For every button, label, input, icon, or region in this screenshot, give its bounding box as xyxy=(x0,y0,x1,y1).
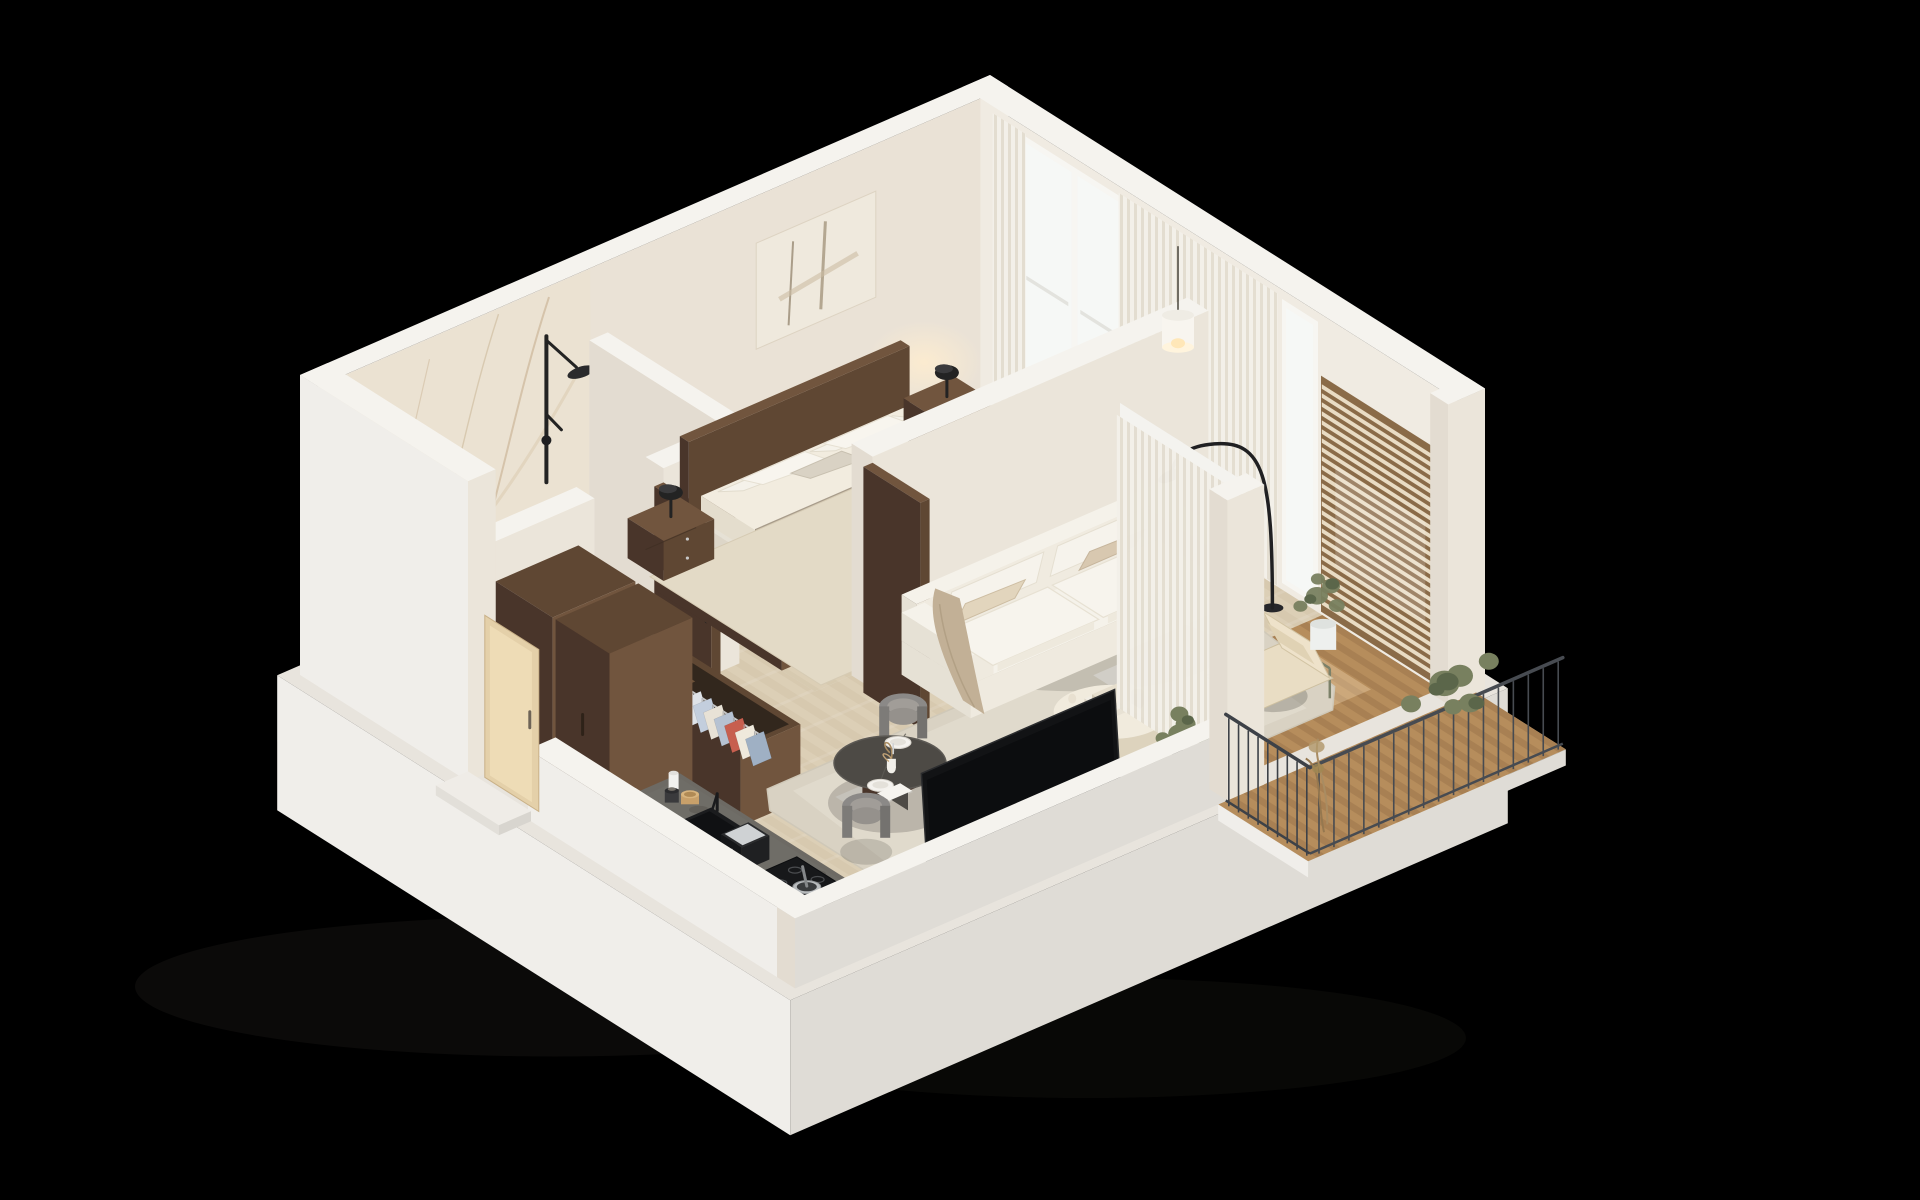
balcony-pier-right xyxy=(1430,377,1485,704)
floorplan-stage xyxy=(0,0,1920,1200)
balcony-pier-left xyxy=(1209,473,1264,800)
apartment-floorplan-3d-render xyxy=(0,0,1920,1200)
entry-door xyxy=(485,615,539,811)
